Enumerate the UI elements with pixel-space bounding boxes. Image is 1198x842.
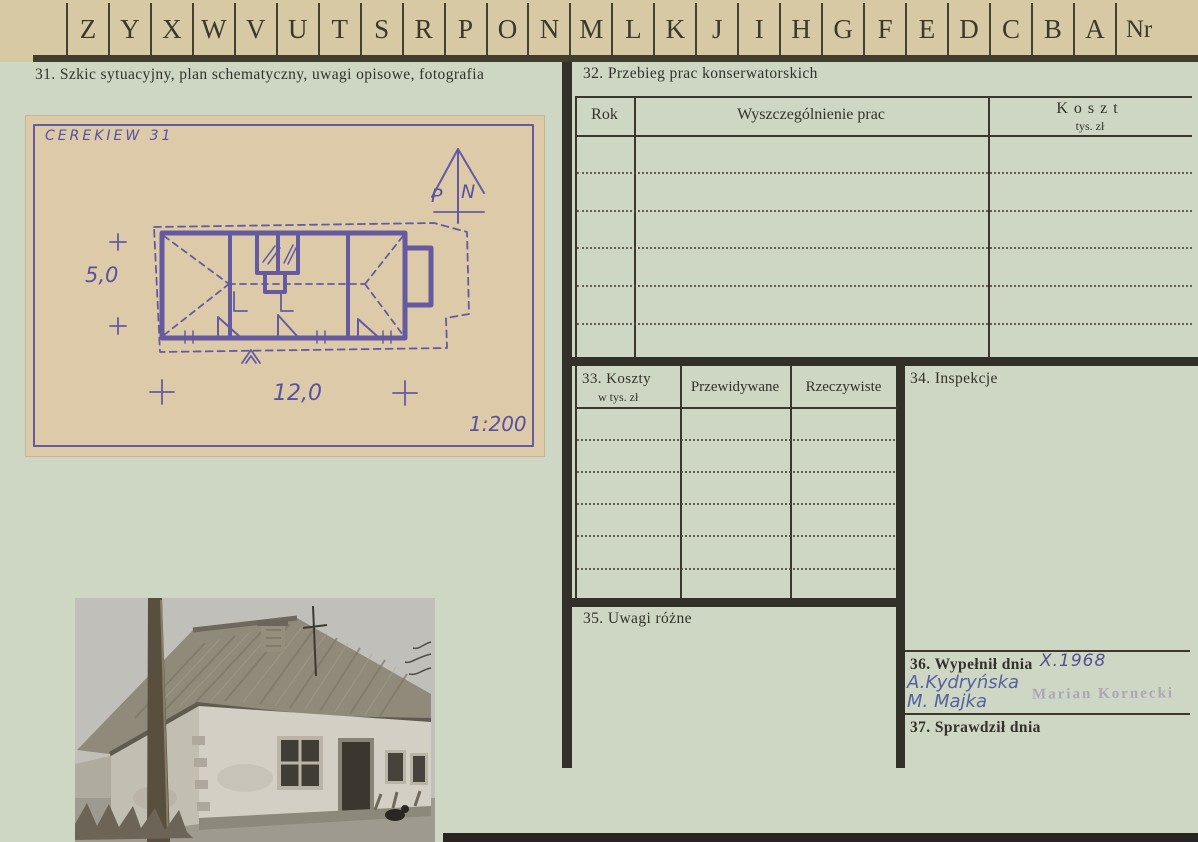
section31-title: 31. Szkic sytuacyjny, plan schematyczny,… [35,66,484,84]
letter-tab-t: T [318,3,360,56]
letter-tab-b: B [1031,3,1073,56]
table33-row-line [577,503,895,505]
scan-edge-strip [443,833,1198,842]
table33-row-line [577,439,895,441]
letter-tab-n: N [527,3,569,56]
section37-title: 37. Sprawdził dnia [910,719,1041,737]
filled-date-handwritten: X.1968 [1040,651,1106,671]
divider-under-section32 [562,357,1198,366]
heritage-record-card: Z Y X W V U T S R P O N M L K J I H G F … [0,0,1198,842]
table32-row-line [577,247,1192,249]
floor-plan-sketch: CEREKIEW 31 P N 5,0 12,0 1:200 [25,115,545,457]
signature-1: A.Kydryńska [907,672,1019,693]
table32-row-line [577,323,1192,325]
site-photo [75,598,435,842]
section33-title: 33. Koszty [582,371,651,388]
dimension-width: 12,0 [273,381,322,406]
signature-2: M. Majka [907,691,987,712]
table32-row-line [577,285,1192,287]
table32-left-border [575,96,577,358]
letter-tab-h: H [779,3,821,56]
letter-tab-c: C [989,3,1031,56]
section35-title: 35. Uwagi różne [583,610,692,628]
letter-tab-x: X [150,3,192,56]
letter-tab-d: D [947,3,989,56]
col-header-koszt: Koszt [988,100,1192,118]
table32-row-line [577,172,1192,174]
letter-tab-u: U [276,3,318,56]
letter-index-strip: Z Y X W V U T S R P O N M L K J I H G F … [0,0,1198,62]
table33-header-underline [575,407,897,409]
letter-tab-g: G [821,3,863,56]
letter-tab-k: K [653,3,695,56]
letter-tab-m: M [569,3,611,56]
letter-tab-l: L [611,3,653,56]
table33-row-line [577,535,895,537]
nr-label: Nr [1115,3,1198,56]
letter-tab-w: W [192,3,234,56]
letter-index: Z Y X W V U T S R P O N M L K J I H G F … [66,3,1198,56]
col-header-wyszczegolnienie: Wyszczególnienie prac [634,106,988,124]
table32-col-line-2 [988,96,990,358]
letter-tab-f: F [863,3,905,56]
col-header-przewidywane: Przewidywane [680,379,790,396]
divider-under-section33 [562,598,905,607]
north-arrow-letter-n: N [461,181,475,203]
north-arrow-letter-p: P [431,185,442,207]
letter-tab-r: R [402,3,444,56]
letter-tab-y: Y [108,3,150,56]
table32-top-border [575,96,1192,98]
col-header-rzeczywiste: Rzeczywiste [790,379,897,396]
letter-tab-z: Z [66,3,108,56]
table33-row-line [577,471,895,473]
col-header-koszt-sub: tys. zł [988,119,1192,134]
table32-header-underline [575,135,1192,137]
sketch-caption: CEREKIEW 31 [45,128,173,144]
table32-row-line [577,210,1192,212]
table32-col-line-1 [634,96,636,358]
letter-tab-s: S [360,3,402,56]
section33-title-sub: w tys. zł [598,390,638,405]
letter-tab-e: E [905,3,947,56]
letter-tab-i: I [737,3,779,56]
name-stamp: Marian Kornecki [1032,685,1174,703]
table33-col-line-2 [790,366,792,599]
sketch-scale: 1:200 [469,412,527,436]
letter-tab-v: V [234,3,276,56]
dimension-height: 5,0 [85,263,118,287]
section37-top-line [905,713,1190,715]
letter-tab-a: A [1073,3,1115,56]
letter-tab-o: O [486,3,528,56]
table33-row-line [577,568,895,570]
top-rule [33,55,1198,62]
right-divider-bar [896,364,905,768]
section32-title: 32. Przebieg prac konserwatorskich [583,65,818,83]
center-divider-bar [562,62,572,768]
letter-tab-j: J [695,3,737,56]
letter-tab-p: P [444,3,486,56]
table33-col-line-1 [680,366,682,599]
section34-title: 34. Inspekcje [910,370,998,388]
col-header-rok: Rok [575,106,634,124]
table33-left-border [575,366,577,599]
